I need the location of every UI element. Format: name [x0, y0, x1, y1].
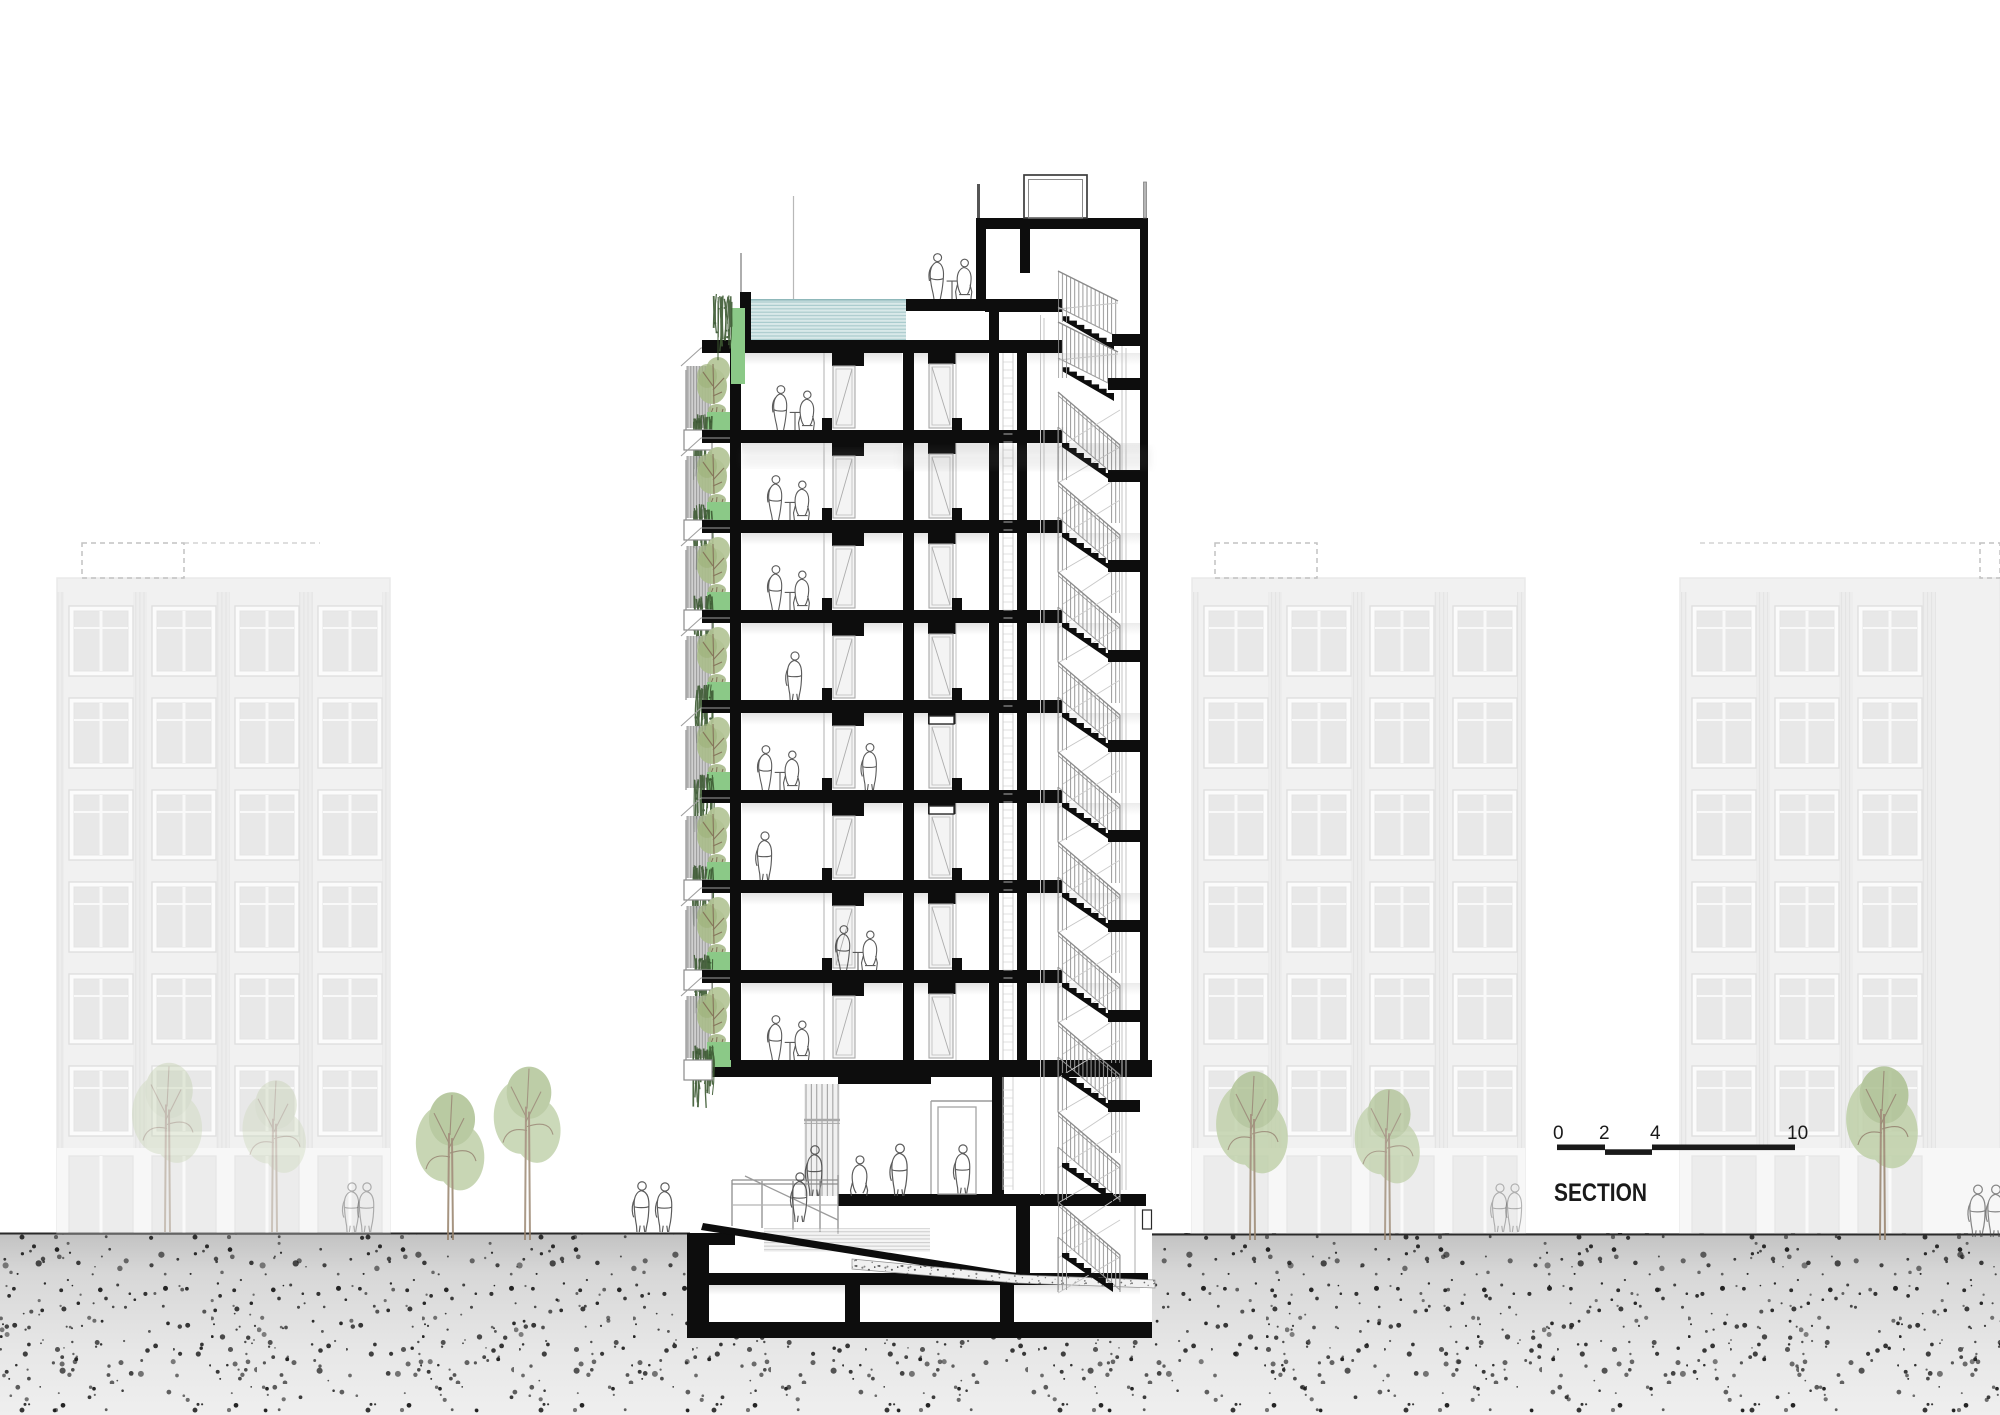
svg-text:10: 10	[1787, 1123, 1808, 1144]
svg-text:0: 0	[1553, 1123, 1564, 1144]
svg-text:2: 2	[1599, 1123, 1610, 1144]
svg-text:4: 4	[1650, 1123, 1661, 1144]
svg-text:SECTION: SECTION	[1554, 1179, 1647, 1207]
